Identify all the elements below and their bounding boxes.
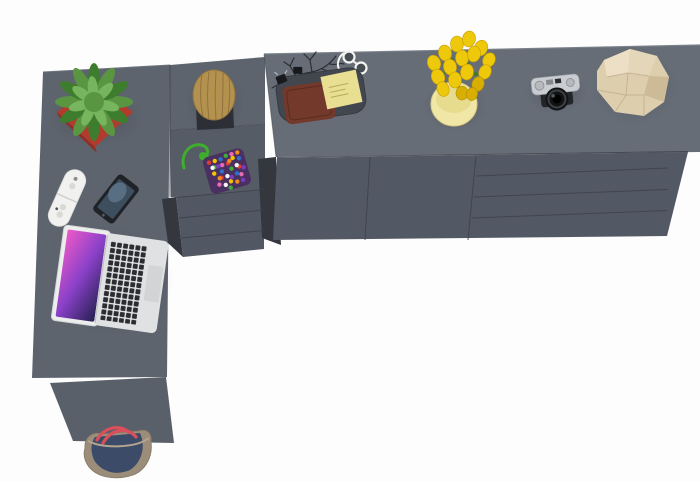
glasses-lens-left	[344, 52, 355, 63]
render-scene: Top-down 3D render of a graphite L-shape…	[0, 0, 700, 482]
sideboard-front	[273, 152, 688, 240]
laptop: Open silver laptop	[51, 225, 169, 335]
pedestal-front	[176, 189, 264, 257]
plant-center	[84, 92, 104, 112]
camera-viewfinder	[555, 78, 561, 83]
camera-dial-left	[535, 81, 545, 91]
camera-dial-right	[566, 78, 575, 87]
camera-hotshoe	[546, 79, 553, 85]
log-stool: Wooden log stool on dark base	[193, 70, 235, 130]
handbag: Canvas tote bag	[84, 428, 151, 478]
